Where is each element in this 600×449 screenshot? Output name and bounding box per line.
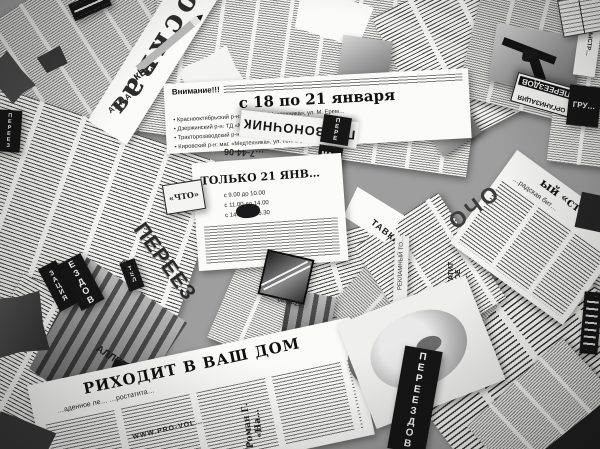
tolko-text: ТОЛЬКО 21 ЯНВ… <box>200 166 320 187</box>
dark-ad-text-lines <box>583 296 600 351</box>
gruz-text: ГРУ… <box>566 84 600 127</box>
newspaper-collage: осква в кв… АЛМАГ… Внимание!!! с 18 по 2… <box>0 0 600 449</box>
pereez-left-box: ПЕРЕЕЗ <box>0 109 22 153</box>
pereez-left-text: ПЕРЕЕЗ <box>0 109 22 153</box>
reklamny-text: РЕКЛАМНЫЙ ТО… <box>397 236 406 290</box>
pere-block: ПЕРЕ <box>320 114 352 146</box>
gruz-box: ГРУ… <box>566 84 600 127</box>
reklamny-fragment: РЕКЛАМНЫЙ ТО… <box>393 236 409 306</box>
boxed-ads-corner <box>557 0 600 38</box>
pere-block-text: ПЕРЕ <box>320 114 352 146</box>
sale-tile-ribbon <box>261 261 311 293</box>
